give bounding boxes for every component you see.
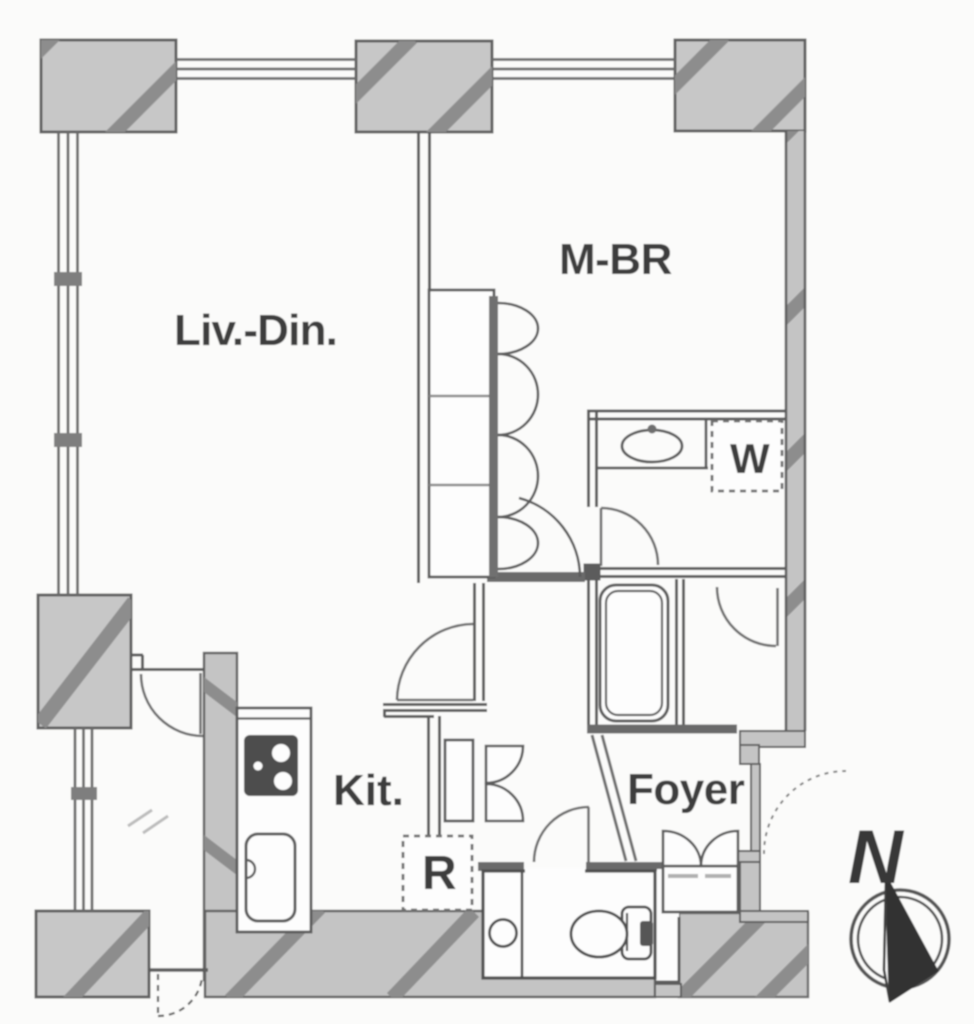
svg-text:R: R: [422, 847, 457, 900]
svg-text:Foyer: Foyer: [627, 765, 745, 814]
svg-text:N: N: [848, 815, 905, 900]
svg-text:Liv.-Din.: Liv.-Din.: [174, 306, 337, 355]
svg-text:Kit.: Kit.: [333, 766, 404, 815]
svg-text:M-BR: M-BR: [559, 235, 672, 284]
svg-text:W: W: [730, 435, 770, 482]
